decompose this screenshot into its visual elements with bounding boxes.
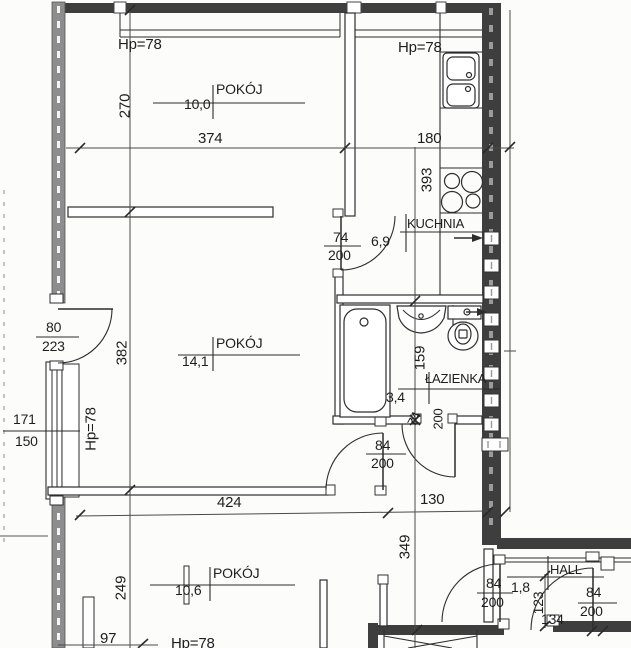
room2-name: POKÓJ [216,336,262,350]
label-lines [3,85,617,603]
room-door-width: 84 [375,438,390,452]
floor-plan: Hp=78 Hp=78 270 POKÓJ 10,0 374 180 393 K… [0,0,631,648]
bathroom-area: 3,4 [386,390,405,404]
hall-door1-width: 84 [486,576,501,590]
room2-area: 14,1 [182,354,208,368]
sill-note-room3: Hp=78 [171,636,215,648]
dim-97: 97 [100,631,116,646]
bathroom-name: ŁAZIENKA [425,372,486,385]
kitchen-name: KUCHNIA [407,217,464,230]
sill-note-room1: Hp=78 [118,37,162,52]
vent-arrow-kitchen [454,234,483,242]
windows [46,13,482,505]
hall-door1-height: 200 [481,595,504,609]
room1-name: POKÓJ [216,82,262,96]
room-door-height: 200 [371,456,394,470]
hall-door2-width: 84 [586,585,601,599]
wall-block-hatch [482,232,508,451]
hall-door2-height: 200 [580,604,603,618]
window-height: 150 [15,434,38,448]
kitchen-sink [443,53,479,108]
dim-374: 374 [198,131,222,146]
washbasin [397,306,446,333]
stove [442,172,483,213]
dim-424: 424 [217,495,241,510]
kitchen-door-height: 200 [328,248,351,262]
bathtub [340,305,390,417]
dim-249: 249 [114,576,129,600]
dim-393: 393 [420,168,435,192]
hall-area: 1,8 [511,580,530,594]
kitchen-area: 6,9 [371,234,390,248]
floorplan-drawing [0,0,631,648]
sill-note-room2: Hp=78 [84,407,99,451]
hall-name: HALL [550,563,582,576]
dim-180: 180 [417,131,441,146]
sill-note-kitchen: Hp=78 [398,40,442,55]
window-width: 171 [13,412,36,426]
dim-382: 382 [115,341,130,365]
bathroom-door [402,424,455,477]
dim-270: 270 [118,94,133,118]
balcony-door-height: 223 [42,339,65,353]
room3-name: POKÓJ [213,566,259,580]
dim-159: 159 [413,346,428,370]
bath-door-height: 200 [432,408,445,429]
kitchen-door-width: 74 [333,230,348,244]
doors [58,216,593,630]
dim-349: 349 [398,535,413,559]
room1-area: 10,0 [184,97,210,111]
dim-134: 134 [541,612,564,626]
room3-area: 10,6 [175,583,201,597]
dim-130: 130 [420,492,444,507]
balcony-door [58,309,113,363]
balcony-door-width: 80 [46,320,61,334]
